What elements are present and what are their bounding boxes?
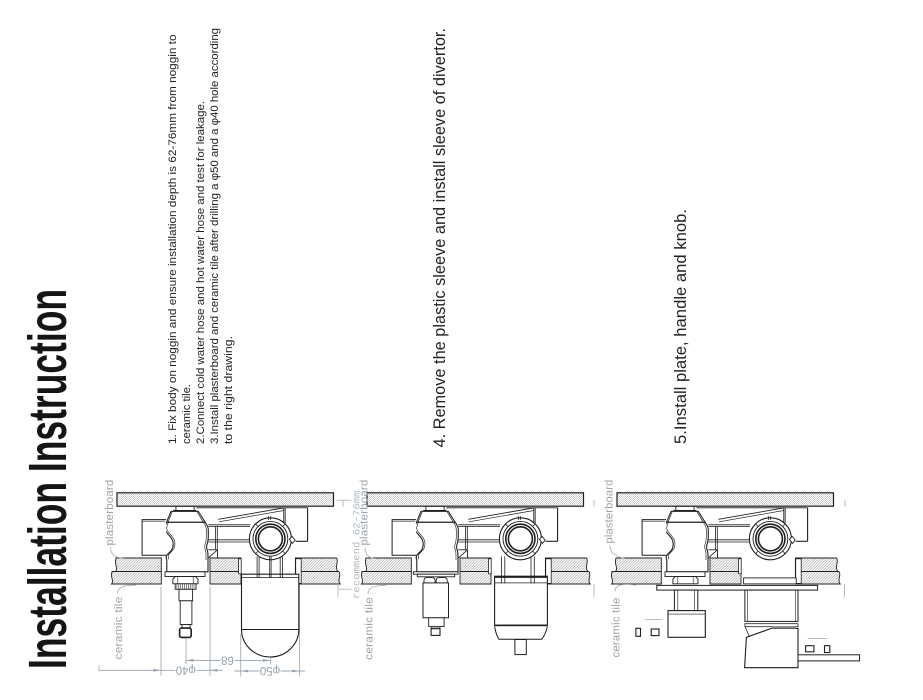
svg-text:plasterboard: plasterboard <box>604 480 616 544</box>
svg-text:68: 68 <box>221 653 234 665</box>
svg-text:5.Install plate, handle and kn: 5.Install plate, handle and knob. <box>671 209 690 444</box>
svg-text:plasterboard: plasterboard <box>104 480 116 546</box>
svg-text:4. Remove the plastic sleeve a: 4. Remove the plastic sleeve and install… <box>430 28 449 448</box>
svg-text:ceramic tile.: ceramic tile. <box>181 384 193 444</box>
svg-text:to the right drawing.: to the right drawing. <box>223 336 235 444</box>
svg-text:3.Install plasterboard and cer: 3.Install plasterboard and ceramic tile … <box>209 28 221 444</box>
svg-text:1. Fix body on noggin and ensu: 1. Fix body on noggin and ensure install… <box>167 35 179 445</box>
svg-text:ceramic tile: ceramic tile <box>364 597 376 660</box>
svg-text:ceramic tile: ceramic tile <box>611 598 623 658</box>
svg-text:φ50: φ50 <box>260 664 280 676</box>
svg-text:2.Connect cold water hose and: 2.Connect cold water hose and hot water … <box>195 101 207 444</box>
svg-text:ceramic tile: ceramic tile <box>113 597 125 660</box>
svg-text:Installation Instruction: Installation Instruction <box>18 289 78 669</box>
svg-text:plasterboard: plasterboard <box>359 480 371 546</box>
svg-text:φ40: φ40 <box>176 663 196 675</box>
